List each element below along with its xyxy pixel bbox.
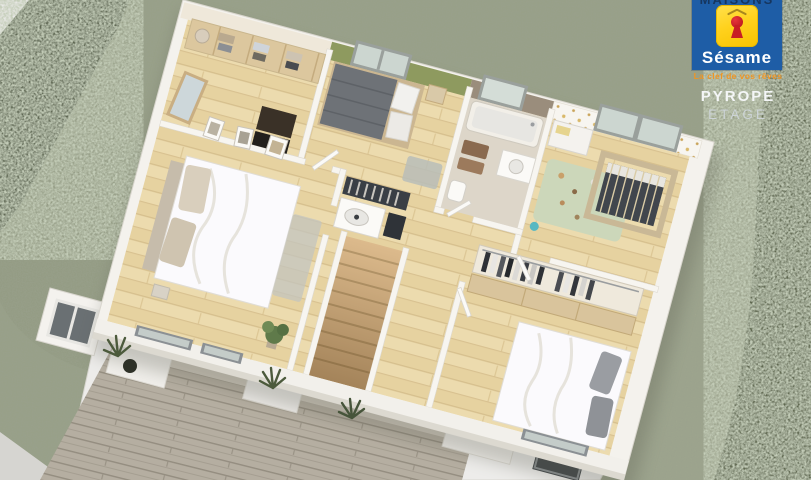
keyhole-badge	[716, 5, 758, 47]
brand-logo: MAISONS Sésame La clef de vos rêves PYRO…	[664, 0, 811, 140]
brand-panel: MAISONS Sésame	[692, 0, 782, 70]
floor-plan-page: { "brand": { "top_text": "MAISONS", "nam…	[0, 0, 811, 480]
plan-model-name: PYROPE	[664, 88, 811, 105]
floor-level-label: ETAGE	[664, 107, 811, 122]
brand-name: Sésame	[692, 48, 782, 68]
roof-icon	[736, 9, 747, 16]
brand-tagline: La clef de vos rêves	[664, 71, 811, 81]
